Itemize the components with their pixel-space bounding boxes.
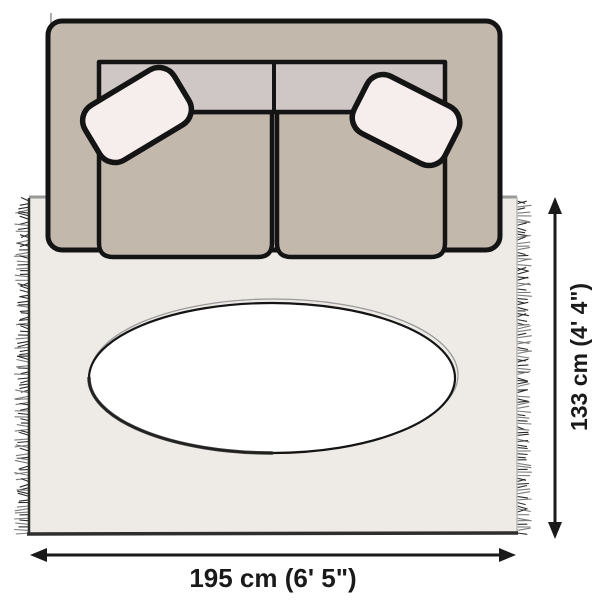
fringe-hair [517, 457, 526, 458]
fringe-hair [18, 413, 29, 414]
fringe-hair [14, 530, 29, 531]
fringe-hair [517, 223, 527, 226]
fringe-hair [15, 399, 29, 400]
fringe-hair [517, 351, 531, 354]
fringe-hair [19, 354, 29, 355]
fringe-hair [517, 320, 527, 322]
fringe-hair [517, 528, 531, 530]
fringe-hair [517, 415, 525, 416]
fringe-hair [517, 466, 531, 468]
fringe-hair [20, 297, 29, 299]
sofa [48, 13, 500, 257]
fringe-hair [17, 442, 29, 443]
fringe-hair [15, 347, 30, 348]
fringe-hair [17, 261, 29, 262]
fringe-hair [517, 406, 529, 408]
fringe-hair [517, 299, 528, 300]
fringe-hair [517, 330, 531, 332]
fringe-hair [16, 268, 29, 269]
fringe-hair [17, 506, 29, 507]
fringe-hair [517, 454, 528, 455]
fringe-hair [17, 341, 29, 343]
fringe-hair [517, 222, 530, 223]
fringe-hair [517, 463, 531, 465]
fringe-hair [517, 295, 532, 296]
fringe-hair [517, 411, 531, 412]
fringe-hair [517, 429, 529, 430]
fringe-hair [517, 492, 530, 494]
fringe-hair [15, 509, 29, 511]
fringe-hair [14, 439, 29, 440]
fringe-hair [15, 460, 29, 463]
fringe-hair [16, 454, 29, 456]
fringe-hair [517, 486, 527, 488]
fringe-hair [517, 533, 527, 534]
fringe-hair [517, 208, 525, 210]
fringe-hair [517, 265, 531, 266]
fringe-hair [517, 326, 531, 329]
fringe-hair [17, 301, 29, 303]
fringe-hair [16, 252, 29, 254]
height-arrowhead-bottom [548, 522, 562, 539]
fringe-hair [18, 207, 29, 209]
width-dimension-label: 195 cm (6' 5") [189, 563, 356, 593]
fringe-hair [18, 344, 29, 347]
fringe-hair [517, 365, 528, 366]
fringe-hair [19, 212, 29, 214]
diagram-canvas: 195 cm (6' 5") 133 cm (4' 4") [0, 0, 600, 600]
fringe-hair [517, 205, 531, 207]
fringe-hair [517, 212, 530, 213]
width-arrowhead-right [499, 548, 516, 562]
fringe-hair [18, 378, 29, 379]
fringe-hair [15, 512, 29, 513]
fringe-hair [517, 423, 531, 424]
fringe-hair [517, 432, 528, 433]
fringe-hair [517, 368, 531, 369]
fringe-hair [20, 448, 29, 451]
fringe-hair [517, 496, 528, 498]
fringe-hair [517, 417, 529, 418]
fringe-hair [18, 228, 29, 229]
width-dimension: 195 cm (6' 5") [30, 548, 516, 593]
fringe-hair [517, 289, 526, 290]
fringe-hair [517, 255, 528, 256]
fringe-hair [19, 500, 29, 501]
rug-edge-bottom [27, 533, 518, 534]
fringe-hair [19, 520, 29, 521]
fringe-hair [20, 311, 29, 312]
fringe-hair [517, 356, 529, 358]
fringe-hair [17, 306, 29, 308]
fringe-hair [17, 360, 30, 363]
fringe-hair [517, 503, 526, 505]
fringe-hair [17, 425, 29, 427]
fringe-hair [517, 228, 526, 231]
fringe-hair [20, 381, 29, 384]
fringe-hair [517, 347, 528, 349]
width-arrowhead-left [30, 548, 47, 562]
fringe-hair [20, 404, 29, 405]
fringe-hair [20, 387, 30, 389]
fringe-hair [20, 484, 29, 487]
fringe-hair [20, 408, 29, 410]
fringe-hair [517, 499, 532, 500]
fringe-hair [15, 224, 30, 225]
height-arrowhead-top [548, 197, 562, 214]
fringe-hair [517, 324, 529, 325]
fringe-hair [20, 419, 29, 421]
fringe-hair [517, 448, 528, 449]
fringe-hair [20, 431, 29, 433]
fringe-hair [517, 381, 527, 382]
fringe-hair [517, 252, 526, 254]
fringe-hair [19, 466, 29, 469]
fringe-hair [20, 469, 29, 470]
fringe-hair [517, 333, 526, 335]
fringe-hair [15, 275, 29, 277]
fringe-hair [517, 336, 532, 338]
rug-fringe-left [14, 198, 29, 535]
fringe-hair [517, 307, 528, 310]
fringe-hair [17, 490, 29, 491]
fringe-hair [19, 384, 29, 385]
fringe-hair [20, 331, 29, 332]
fringe-hair [20, 350, 29, 352]
fringe-hair [20, 326, 29, 330]
rug-size-diagram: 195 cm (6' 5") 133 cm (4' 4") [0, 0, 600, 600]
fringe-hair [20, 216, 29, 219]
fringe-hair [16, 338, 29, 339]
fringe-hair [18, 356, 30, 359]
fringe-hair [20, 204, 29, 206]
fringe-hair [517, 434, 529, 435]
fringe-hair [517, 247, 530, 249]
rug-fringe-right [517, 201, 532, 534]
height-dimension: 133 cm (4' 4") [548, 197, 592, 539]
fringe-hair [16, 366, 29, 367]
fringe-hair [15, 523, 29, 524]
fringe-hair [517, 242, 530, 244]
fringe-hair [517, 382, 528, 384]
fringe-hair [517, 445, 527, 447]
fringe-hair [517, 232, 525, 233]
fringe-hair [517, 489, 530, 490]
fringe-hair [19, 324, 30, 326]
fringe-hair [517, 396, 530, 397]
fringe-hair [517, 271, 529, 274]
fringe-hair [517, 421, 528, 422]
fringe-hair [14, 518, 29, 519]
height-dimension-label: 133 cm (4' 4") [566, 283, 592, 431]
fringe-hair [517, 484, 529, 485]
fringe-hair [517, 401, 527, 402]
fringe-hair [20, 290, 29, 293]
